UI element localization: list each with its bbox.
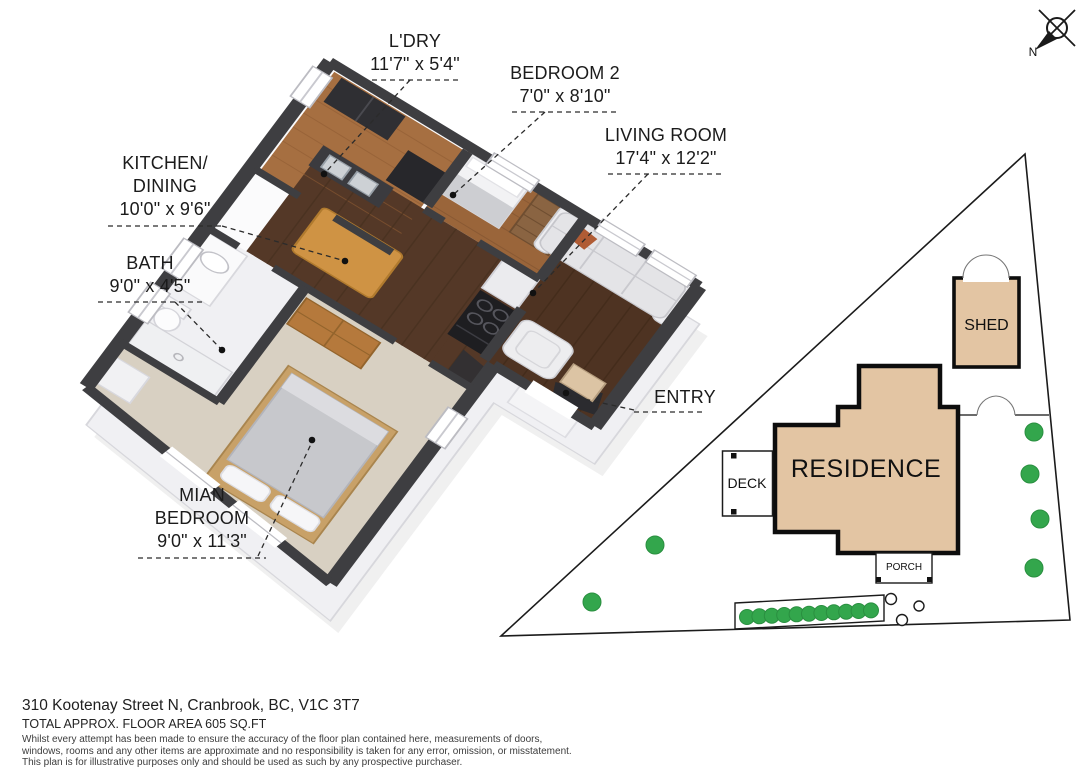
room-name: KITCHEN/ [96,152,234,175]
north-compass [1035,10,1075,50]
label-living-room: LIVING ROOM 17'4" x 12'2" [598,124,734,170]
label-north: N [1025,45,1041,59]
room-name: LIVING ROOM [598,124,734,147]
disclaimer-line: windows, rooms and any other items are a… [22,746,572,758]
room-dims: 11'7" x 5'4" [352,53,478,76]
label-kitchen-dining: KITCHEN/ DINING 10'0" x 9'6" [96,152,234,221]
floor-area-total: TOTAL APPROX. FLOOR AREA 605 SQ.FT [22,717,572,731]
disclaimer: Whilst every attempt has been made to en… [22,734,572,768]
room-dims: 10'0" x 9'6" [96,198,234,221]
room-name: BATH [90,252,210,275]
room-name: MIAN [134,484,270,507]
room-name: ENTRY [630,386,740,409]
label-main-bedroom: MIAN BEDROOM 9'0" x 11'3" [134,484,270,553]
room-dims: 7'0" x 8'10" [498,85,632,108]
label-shed: SHED [954,317,1019,335]
label-laundry: L'DRY 11'7" x 5'4" [352,30,478,76]
label-bath: BATH 9'0" x 4'5" [90,252,210,298]
label-bedroom2: BEDROOM 2 7'0" x 8'10" [498,62,632,108]
room-name: BEDROOM 2 [498,62,632,85]
floorplan-page: L'DRY 11'7" x 5'4" BEDROOM 2 7'0" x 8'10… [0,0,1086,768]
room-name: BEDROOM [134,507,270,530]
label-deck: DECK [720,475,774,491]
disclaimer-line: This plan is for illustrative purposes o… [22,757,572,768]
label-entry: ENTRY [630,386,740,409]
room-dims: 17'4" x 12'2" [598,147,734,170]
room-dims: 9'0" x 11'3" [134,530,270,553]
label-porch: PORCH [876,562,932,573]
property-address: 310 Kootenay Street N, Cranbrook, BC, V1… [22,697,572,715]
room-dims: 9'0" x 4'5" [90,275,210,298]
shed-door-opening [963,274,1009,282]
floorplan-graphics [0,0,1086,768]
room-name: DINING [96,175,234,198]
disclaimer-line: Whilst every attempt has been made to en… [22,734,572,746]
footer-block: 310 Kootenay Street N, Cranbrook, BC, V1… [22,697,572,768]
room-name: L'DRY [352,30,478,53]
label-residence: RESIDENCE [770,455,962,484]
